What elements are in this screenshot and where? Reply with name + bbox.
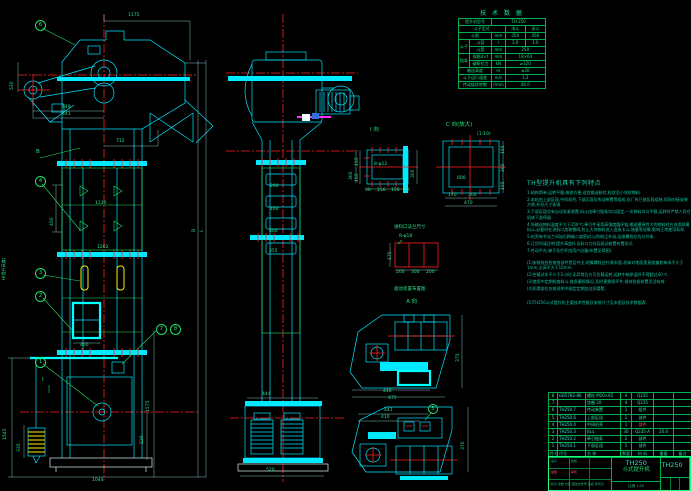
note-line: 4.所输送物料温度不大于250℃,牵引件采用高强度圆环链,输送磨琢性大的物料时应… <box>527 222 691 233</box>
balloon-8: 8 <box>170 324 181 335</box>
bom-item-no: 2 <box>549 436 558 443</box>
counterweight-tip <box>33 456 40 463</box>
detail1-bracket <box>380 362 428 371</box>
tech-r5-value: 250 <box>505 47 545 54</box>
detail1-hole1 <box>404 375 410 381</box>
note-line: 3.下部区段设有自动张紧装置,料斗由牵引链条均匀固定,一次装料均匀平稳,运转时严… <box>527 209 691 220</box>
front-view <box>8 14 213 480</box>
title-block-number-area: TH250 <box>661 457 690 490</box>
dim-450: 450 <box>50 217 55 226</box>
mid-section-panel <box>62 168 142 250</box>
tech-r8-unit: m <box>492 68 506 75</box>
sign-trace: 描图 <box>551 470 557 474</box>
reducer-shaft <box>335 93 347 105</box>
detail2-outline <box>352 407 452 472</box>
marker-I: I <box>42 378 44 383</box>
s1-92: 92 <box>404 188 410 193</box>
bom-material: Q235 <box>632 400 654 407</box>
note-line: 7.传动平台,梯子及栏杆由用户自备(布置见简图). <box>527 248 691 253</box>
d1-375: 375 <box>456 353 461 362</box>
model-number: TH250 <box>612 459 660 467</box>
detail2-pad2 <box>420 422 430 431</box>
bucket-right <box>117 266 124 290</box>
bom-name: 下部区段 <box>586 443 621 450</box>
parts-list-row: 2 TH250.2 牵引链条 2 部件 <box>549 436 691 443</box>
cad-sheet: 1175 712 450 1130 1202 400 1044 1545 335… <box>0 0 691 491</box>
notes-lines: 1.结构简单,运转平稳,维修方便,适宜输送粉状,粒状及小块状物料.2.本机由上部… <box>527 190 691 306</box>
scale-value: 1:25 <box>636 484 644 488</box>
section1-dims <box>360 150 417 189</box>
bom-qty: 1 <box>621 414 632 421</box>
tech-r3-b: 450 <box>525 33 545 40</box>
parts-list-row: 1 TH250.1 下部区段 1 部件 <box>549 443 691 450</box>
bom-name: 中间机壳 <box>586 421 621 428</box>
tech-r2-label: 斗子型式 <box>459 26 506 33</box>
bom-weight <box>654 407 674 414</box>
inlet-bolt: 8-φ18 <box>399 234 412 239</box>
bom-qty: 1 <box>621 407 632 414</box>
bom-code: TH250.1 <box>558 443 586 450</box>
side-head-housing <box>252 60 322 122</box>
weight-stack-1 <box>251 420 273 454</box>
inspection-door <box>73 303 100 338</box>
letter-L: L <box>200 229 205 232</box>
bom-remark <box>674 443 691 450</box>
balloon-4: 4 <box>35 176 46 187</box>
s1-90: 90 <box>365 188 371 193</box>
tech-r4-a: 3.0 <box>505 40 525 47</box>
tech-r3-label: 斗距 <box>459 33 492 40</box>
bom-qty: 2 <box>621 436 632 443</box>
tech-r9-value: 1.2 <box>505 75 545 82</box>
scale-label: 比例 <box>628 484 635 488</box>
bom-name: 牵引链条 <box>586 436 621 443</box>
bucket-symbols <box>80 186 122 231</box>
dim-1130: 1130 <box>95 201 106 206</box>
bom-item-no: 1 <box>549 443 558 450</box>
tech-data-table: 技 术 数 据 提升机型号 TH 250 斗子型式 浅斗 深斗 斗距 mm 35… <box>458 8 546 89</box>
mini-grid <box>661 477 689 490</box>
d1-475: 475 <box>388 396 397 401</box>
base-feet <box>56 467 146 472</box>
bom-remark <box>674 400 691 407</box>
drive-detail-2 <box>352 407 468 480</box>
tech-r1-label: 提升机型号 <box>459 19 492 26</box>
flange-bolt-marks <box>66 159 138 357</box>
parts-list-row: 4 TH250.4 中间机壳 1 部件 <box>549 421 691 428</box>
bom-name: 上部区段 <box>586 414 621 421</box>
tech-group-chain: 链条 <box>459 54 470 68</box>
tech-r8-label: 输送高度 <box>459 68 492 75</box>
section1-bolts <box>360 147 418 187</box>
bucket-left <box>81 266 88 290</box>
parts-list-body: 8 GB5782-86 螺栓 M20×85 4 Q235 7 垫圈 20 4 Q… <box>549 393 691 451</box>
d2-410: 410 <box>381 415 390 420</box>
tech-r8-value: ≤30 <box>505 68 545 75</box>
bom-remark <box>674 436 691 443</box>
dim-712: 712 <box>116 139 125 144</box>
discharge-chute <box>150 100 213 143</box>
tech-r4-unit: l <box>492 40 506 47</box>
parts-list-row: 5 TH250.6 上部区段 1 部件 <box>549 414 691 421</box>
scale-row: 比例 1:25 <box>612 481 660 490</box>
tech-r6-value: 18×64 <box>505 54 545 61</box>
title-block-name-area: TH250 斗式提升机 比例 1:25 <box>612 457 661 490</box>
bom-weight <box>654 393 674 400</box>
note-line: (4)润滑部位应按说明书规定定期加注润滑脂. <box>527 286 691 291</box>
dim-355: 355 <box>269 249 278 254</box>
marker-B: B <box>36 150 40 155</box>
head-platform-band <box>57 77 190 81</box>
detail2-dims <box>358 407 468 472</box>
bom-remark <box>674 393 691 400</box>
detail2-base-band <box>400 476 448 480</box>
parts-list: 8 GB5782-86 螺栓 M20×85 4 Q235 7 垫圈 20 4 Q… <box>548 392 691 458</box>
tech-r10-unit: r/min <box>492 82 506 89</box>
balloon-1: 1 <box>35 357 46 368</box>
dim-1175: 1175 <box>128 13 139 18</box>
counterweight-hatch <box>28 432 45 452</box>
section1-plate <box>403 146 408 193</box>
tech-r7-value: ≥320 <box>505 61 545 68</box>
side-panel <box>262 168 300 333</box>
aview-caption: 驱动装置布置图 <box>394 287 426 292</box>
tech-r9-label: 斗子运行速度 <box>459 75 492 82</box>
flange-band-1 <box>57 161 147 166</box>
dim-449: 449 <box>62 105 71 110</box>
bom-weight <box>654 436 674 443</box>
product-name: 斗式提升机 <box>612 467 660 474</box>
side-base-band <box>243 458 323 463</box>
bom-weight <box>654 443 674 450</box>
bom-qty: 1 <box>621 421 632 428</box>
tech-r2-a: 浅斗 <box>505 26 525 33</box>
s1-155b: 155 <box>355 173 360 182</box>
note-line: (2)空载试车不少于2小时,无异常后方可负载运转,运转中轴承温升不得超过40℃. <box>527 272 691 277</box>
bom-material: 部件 <box>632 436 654 443</box>
inlet-grid-lines <box>409 243 424 267</box>
bom-item-no: 7 <box>549 400 558 407</box>
s1-156a: 156 <box>377 188 386 193</box>
parts-list-row: 7 垫圈 20 4 Q235 <box>549 400 691 407</box>
inlet-grid <box>395 243 438 267</box>
detail1-tab2 <box>424 315 434 322</box>
s2-300r: 300 <box>501 163 506 172</box>
bom-weight: 20.4 <box>654 429 674 436</box>
tech-r4-label: 斗容 <box>470 40 492 47</box>
tech-r3-unit: mm <box>492 33 506 40</box>
weight-hatch <box>251 424 303 448</box>
motor-endcap <box>350 96 359 110</box>
section1-bolt-note: 8-φ12 <box>374 162 387 167</box>
side-flange-1 <box>256 160 306 165</box>
s2-600: 600 <box>457 176 466 181</box>
d2-370: 370 <box>461 441 466 450</box>
dim-400-side: 400 <box>269 229 278 234</box>
parts-list-row: 6 TH250.7 传动装置 1 组件 <box>549 407 691 414</box>
letter-B: B <box>192 229 197 232</box>
bom-material: 部件 <box>632 421 654 428</box>
dim-200: 200 <box>270 184 279 189</box>
bom-qty: 30 <box>621 429 632 436</box>
dim-1044: 1044 <box>92 478 103 483</box>
sign-audit: 审核 <box>571 470 577 474</box>
height-label: H(提升高度) <box>1 258 6 280</box>
side-flange-3 <box>245 401 322 406</box>
balloon-7: 7 <box>156 324 167 335</box>
tech-r5-unit: mm <box>492 47 506 54</box>
note-line: 5.机壳每节法兰间加石棉绳二道密封,以防粉尘外溢,连接螺栓应均匀拧紧. <box>527 234 691 239</box>
tech-r6-unit: mm <box>492 54 506 61</box>
dim-1202: 1202 <box>97 245 108 250</box>
sign-check: 校核 <box>571 459 577 463</box>
bom-name: 传动装置 <box>586 407 621 414</box>
s1-156b: 156 <box>391 188 400 193</box>
parts-list-row: 8 GB5782-86 螺栓 M20×85 4 Q235 <box>549 393 691 400</box>
section2-scale: (1:10) <box>477 132 491 137</box>
dim-444: 444 <box>262 392 271 397</box>
s2-300: 300 <box>468 193 477 198</box>
head-taper <box>252 122 322 140</box>
tech-r5-label: 斗宽 <box>470 47 492 54</box>
balloon-3: 3 <box>35 268 46 279</box>
tech-r1-value: TH 250 <box>492 19 546 26</box>
tech-table-title: 技 术 数 据 <box>458 8 546 17</box>
tech-r10-label: 传动链轮转数 <box>459 82 492 89</box>
bom-code <box>558 400 586 407</box>
dim-520-right: 520 <box>140 435 145 444</box>
note-line: (5)TH250斗式提升机主要技术性能及安装尺寸见本图及技术数据表. <box>527 300 691 305</box>
tech-r3-a: 350 <box>505 33 525 40</box>
side-dim-lines <box>240 150 356 476</box>
side-platform-band <box>228 76 352 81</box>
tech-r9-unit: m/s <box>492 75 506 82</box>
side-casing <box>262 140 300 403</box>
bom-weight <box>654 414 674 421</box>
motor-body <box>316 90 350 114</box>
bom-item-no: 3 <box>549 429 558 436</box>
balloon-6: 6 <box>35 20 46 31</box>
inlet-detail <box>390 240 438 270</box>
tech-r7-unit: kN <box>492 61 506 68</box>
detail2-centerlines <box>365 447 458 463</box>
bom-qty: 4 <box>621 400 632 407</box>
section2-label: C 向(放大) <box>446 123 472 128</box>
note-line: 1.结构简单,运转平稳,维修方便,适宜输送粉状,粒状及小块状物料. <box>527 190 691 195</box>
inlet-200a: 200 <box>396 270 405 275</box>
flange-band-2 <box>57 252 147 257</box>
bucket-profile-2 <box>266 196 296 207</box>
bom-material: Q235-A <box>632 429 654 436</box>
note-line: (1)安装前应检查各部件是否齐全,地脚螺栓应拧紧牢固,机体对地面垂直度偏差每米不… <box>527 260 691 271</box>
balloon-5: 5 <box>428 404 438 414</box>
bom-item-no: 5 <box>549 414 558 421</box>
bom-weight <box>654 400 674 407</box>
s1-300: 300 <box>411 169 416 178</box>
base-plate <box>50 458 152 467</box>
title-block-revision-area: 设计 校核 描图 审核 标记 处数 分区 更改文件号 签名 年月日 <box>549 457 612 490</box>
s1-155a: 155 <box>355 157 360 166</box>
title-block: 设计 校核 描图 审核 标记 处数 分区 更改文件号 签名 年月日 TH250 … <box>548 456 691 491</box>
bom-name: 料斗 <box>586 429 621 436</box>
tech-r2-b: 深斗 <box>525 26 545 33</box>
detail1-centerlines <box>369 336 455 361</box>
parts-list-row: 3 TH250.3 料斗 30 Q235-A 20.4 <box>549 429 691 436</box>
drive-detail-1 <box>350 315 462 397</box>
bom-code: TH250.6 <box>558 414 586 421</box>
bom-item-no: 8 <box>549 393 558 400</box>
dim-520-tension: 520 <box>10 81 15 90</box>
aview-label: A 向 <box>406 300 417 305</box>
bom-remark <box>674 414 691 421</box>
inlet-200b: 200 <box>426 270 435 275</box>
bom-code: TH250.3 <box>558 429 586 436</box>
note-line: 2.本机由上部区段,中间机壳,下部区段及传动装置等组成,出厂时已按区段组装,现场… <box>527 197 691 208</box>
drawing-number: TH250 <box>661 460 689 470</box>
note-line: 6.订货时请注明:提升高度H,出料口方向及驱动装置布置形式. <box>527 241 691 246</box>
sign-design: 设计 <box>551 459 557 463</box>
detail1-base <box>398 371 430 385</box>
bom-material: 部件 <box>632 414 654 421</box>
dim-335: 335 <box>17 443 22 452</box>
tech-r7-label: 破断拉力 <box>470 61 492 68</box>
side-guard-arc <box>245 64 252 116</box>
bom-remark <box>674 429 691 436</box>
dim-441: 441 <box>62 112 71 117</box>
weight-stack-2 <box>281 420 303 454</box>
detail1-tab1 <box>404 315 414 322</box>
bom-item-no: 6 <box>549 407 558 414</box>
tech-r6-label: 规格d×t <box>470 54 492 61</box>
bom-qty: 1 <box>621 443 632 450</box>
dim-520-base: 520 <box>266 468 275 473</box>
bom-weight <box>654 421 674 428</box>
inlet-300: 300 <box>411 270 420 275</box>
motor-fins <box>320 92 344 112</box>
bom-name: 螺栓 M20×85 <box>586 393 621 400</box>
takeup-centerline <box>18 74 50 106</box>
dim-160: 160 <box>270 207 279 212</box>
bom-material: 组件 <box>632 407 654 414</box>
dim-400: 400 <box>80 343 89 348</box>
bom-qty: 4 <box>621 393 632 400</box>
d2-441: 441 <box>384 408 393 413</box>
tech-r10-value: 46.0 <box>505 82 545 89</box>
section-view-I <box>360 146 418 193</box>
bom-name: 垫圈 20 <box>586 400 621 407</box>
bom-code: TH250.7 <box>558 407 586 414</box>
section2-bolts <box>436 135 506 200</box>
detail1-hole2 <box>416 375 422 381</box>
side-view <box>226 14 359 482</box>
dim-1575: 1575 <box>146 401 151 412</box>
detail1-outline <box>350 315 450 388</box>
bom-item-no: 4 <box>549 421 558 428</box>
balloon-2: 2 <box>35 291 46 302</box>
section1-label: I 向 <box>370 128 379 133</box>
casing-rails <box>62 129 142 458</box>
bom-code: TH250.2 <box>558 436 586 443</box>
notes-title: TH型提升机具有下列特点 <box>527 178 691 187</box>
bom-remark <box>674 407 691 414</box>
notes-block: TH型提升机具有下列特点 1.结构简单,运转平稳,维修方便,适宜输送粉状,粒状及… <box>527 178 691 307</box>
detail2-plate <box>368 432 396 439</box>
bearing-cap <box>88 46 100 54</box>
tech-group-bucket: 斗子 <box>459 40 470 54</box>
note-line: (3)使用中定期检查料斗,链条磨损情况,及时更换损坏件,保持张紧装置灵活有效. <box>527 279 691 284</box>
side-head-cap <box>266 52 306 60</box>
inlet-170: 170 <box>388 251 393 260</box>
tech-r4-b: 1.6 <box>525 40 545 47</box>
inlet-label: 进料口法兰尺寸 <box>394 225 426 230</box>
s2-155a: 155 <box>501 145 506 154</box>
inlet-dims <box>390 243 438 270</box>
bucket-profile-3 <box>266 218 296 229</box>
blue-marker <box>312 113 319 119</box>
detail2-pad1 <box>404 422 414 431</box>
bom-code: TH250.4 <box>558 421 586 428</box>
dim-1545: 1545 <box>3 429 8 440</box>
d1-440: 440 <box>383 389 392 394</box>
revision-row: 标记 处数 分区 更改文件号 签名 年月日 <box>551 482 604 486</box>
bom-material: 部件 <box>632 443 654 450</box>
s2-470: 470 <box>464 201 473 206</box>
dim-300-side: 300 <box>349 171 354 180</box>
s2-155b: 155 <box>501 181 506 190</box>
white-marker <box>302 114 310 121</box>
s2-170: 170 <box>448 193 457 198</box>
bom-remark <box>674 421 691 428</box>
bom-material: Q235 <box>632 393 654 400</box>
bom-code: GB5782-86 <box>558 393 586 400</box>
